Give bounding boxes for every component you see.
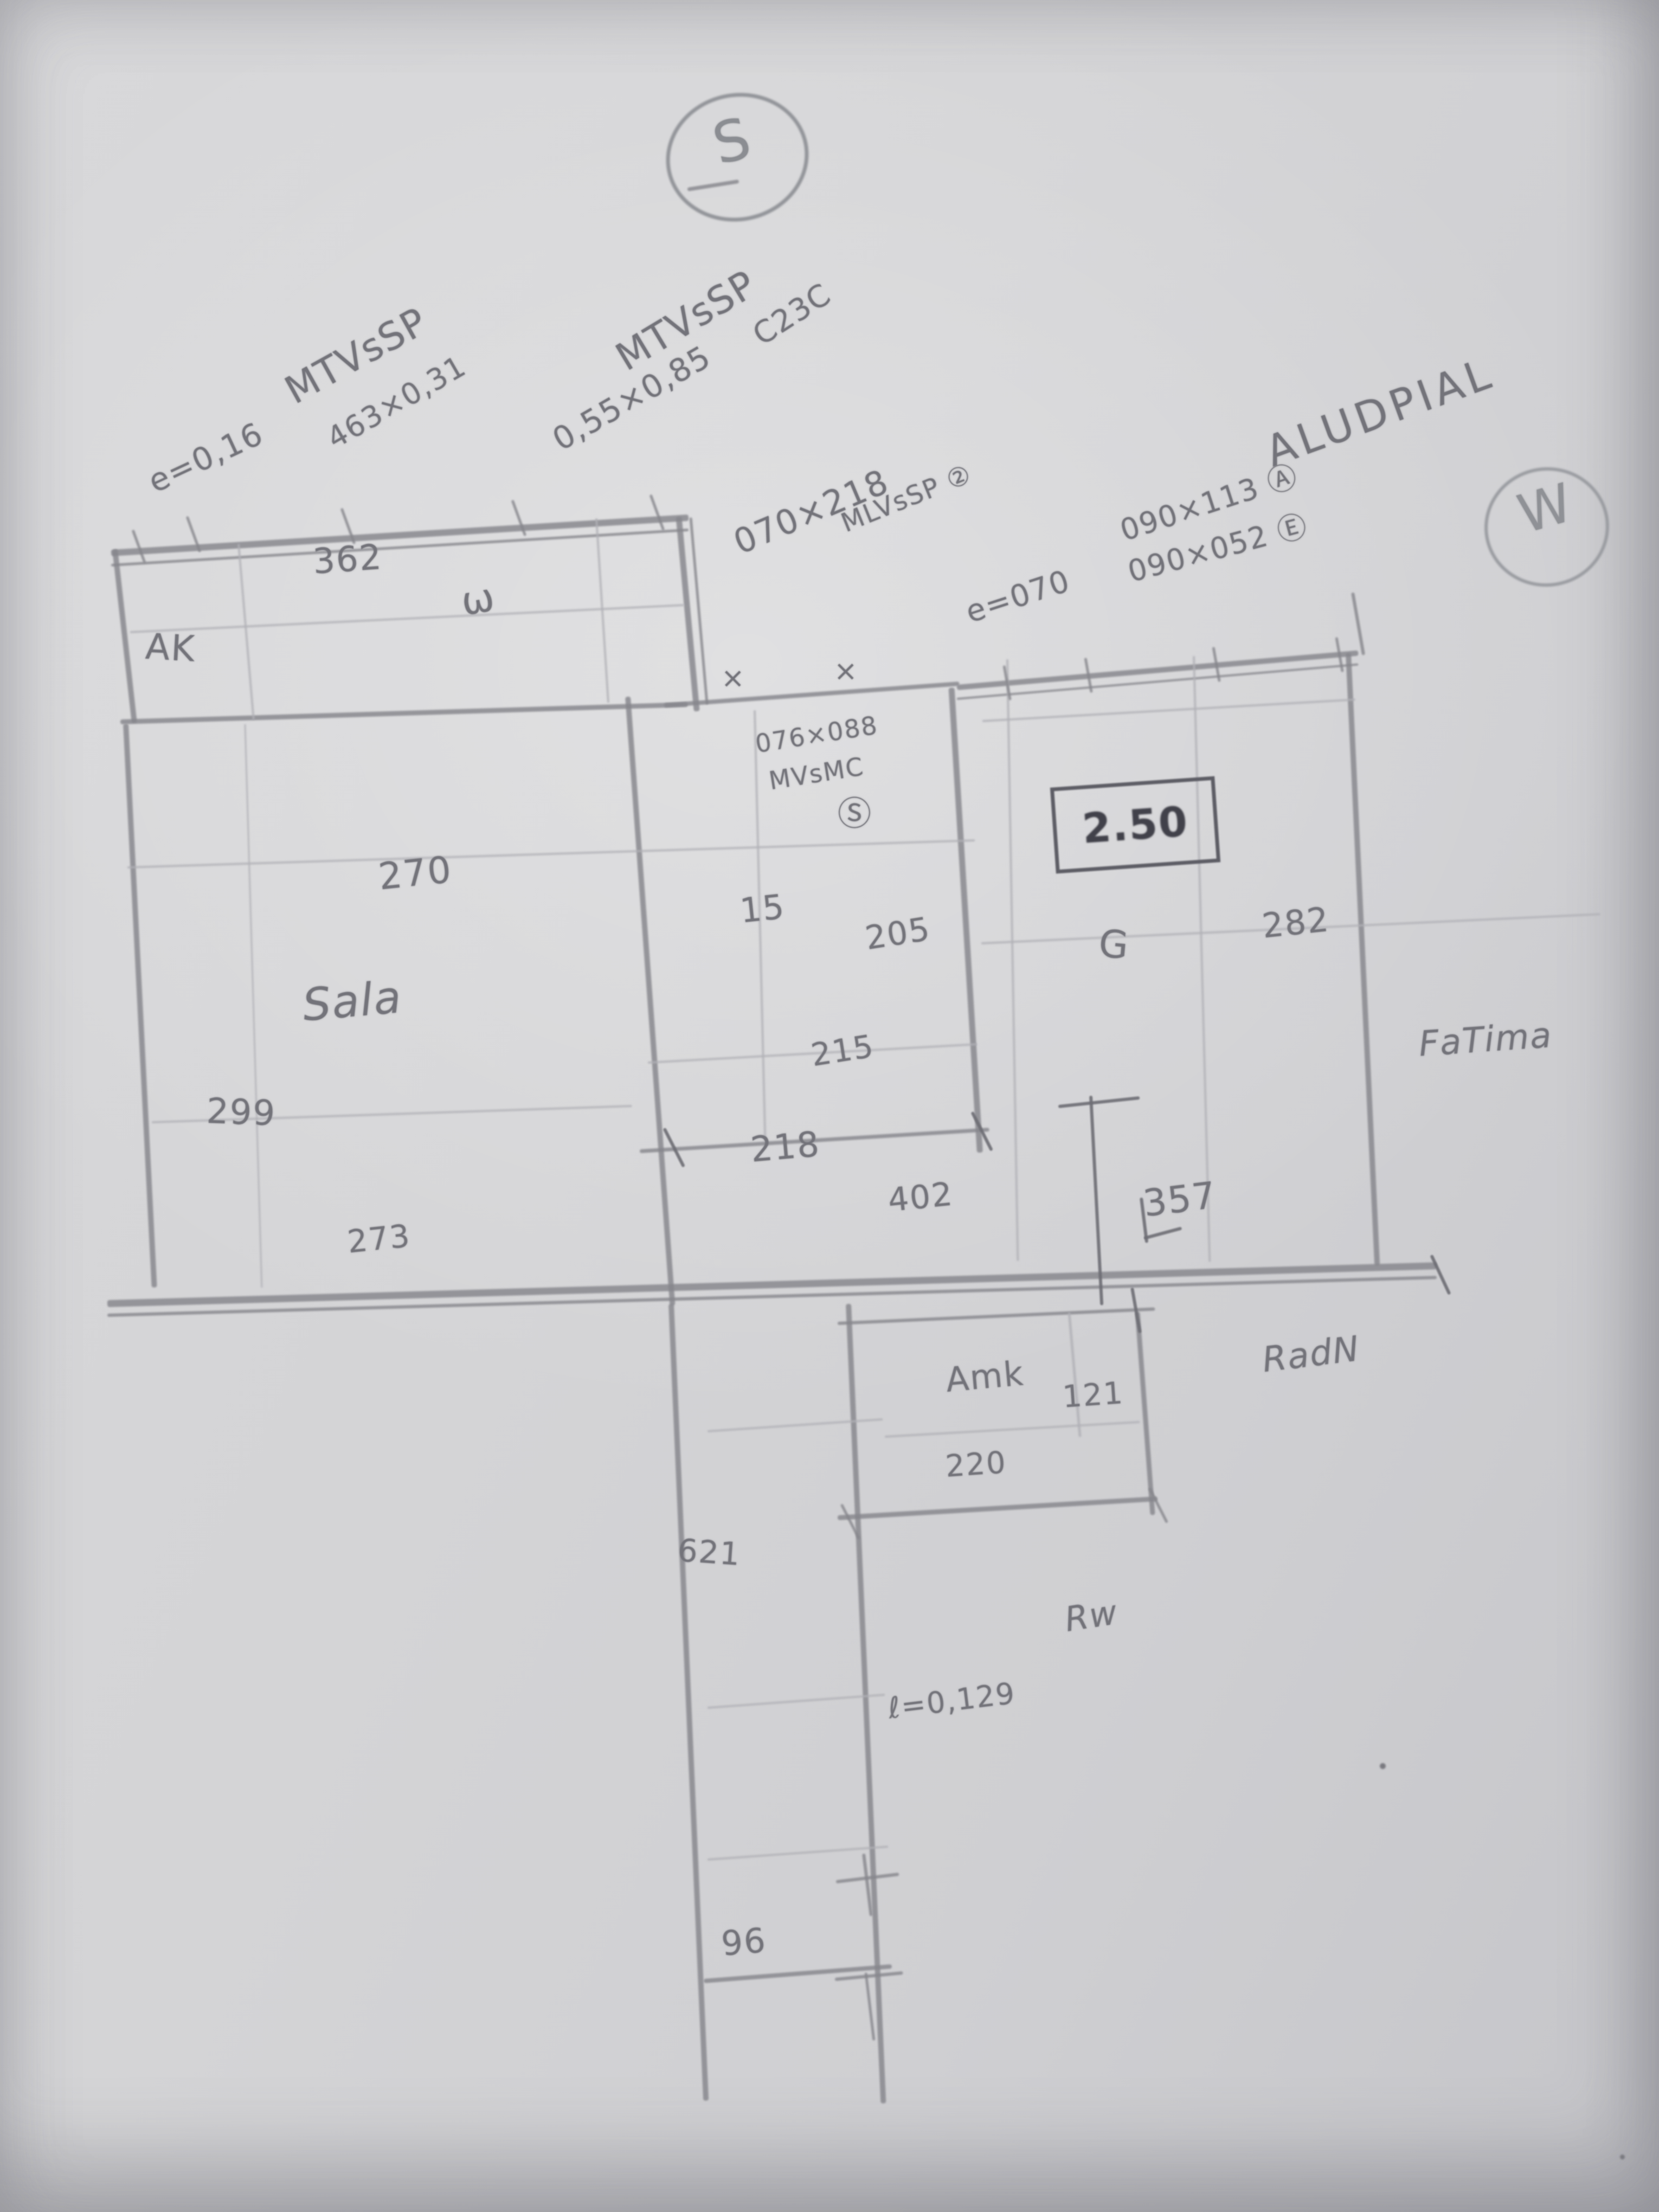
wall-line: [664, 681, 960, 708]
wall-line: [123, 724, 157, 1288]
construction-line: [595, 518, 609, 703]
wall-line: [704, 1964, 892, 1983]
dim-270: 270: [377, 852, 454, 896]
dim-15: 15: [738, 890, 787, 928]
construction-line: [708, 1694, 885, 1709]
mark-g: G: [1097, 924, 1131, 965]
wall-line: [1135, 1311, 1155, 1515]
value-box-250: 2.50: [1050, 776, 1220, 874]
tick-mark: [132, 530, 146, 564]
dim-e-016: e=0,16: [144, 417, 268, 498]
wall-line: [949, 687, 983, 1153]
wall-line: [120, 702, 688, 724]
label-aludpial: ALUDPIAL: [1261, 352, 1500, 473]
tick-mark: [650, 494, 665, 531]
dim-218: 218: [749, 1127, 821, 1168]
construction-line: [237, 544, 255, 720]
construction-line: [885, 1421, 1140, 1438]
dim-205: 205: [863, 912, 933, 955]
dim-220: 220: [944, 1448, 1008, 1482]
mark-x-2: ×: [834, 657, 859, 685]
wall-line: [676, 517, 700, 711]
wall-line: [1351, 592, 1365, 655]
tick-mark: [835, 1971, 903, 1981]
label-fatima: FaTima: [1418, 1018, 1553, 1062]
dim-l-0129: ℓ=0,129: [886, 1679, 1017, 1723]
dim-96: 96: [720, 1924, 768, 1961]
dim-299: 299: [206, 1094, 276, 1131]
wall-line: [1346, 653, 1380, 1266]
label-radn: RadN: [1261, 1332, 1362, 1378]
wall-line: [668, 1304, 709, 2101]
dim-e-070: e=070: [962, 566, 1074, 628]
wall-line: [112, 549, 137, 723]
construction-line: [1193, 656, 1211, 1262]
dim-402: 402: [886, 1178, 955, 1217]
mark-x-1: ×: [721, 664, 746, 692]
mark-circled-s: Ⓢ: [838, 797, 872, 831]
label-ak: AK: [145, 629, 197, 667]
construction-line: [245, 724, 263, 1288]
construction-line: [130, 604, 684, 633]
wall-line: [625, 697, 675, 1306]
dim-621: 621: [677, 1534, 742, 1570]
value-250: 2.50: [1081, 801, 1189, 849]
construction-line: [708, 1846, 888, 1861]
label-rw: Rw: [1063, 1596, 1120, 1637]
dim-282: 282: [1261, 903, 1331, 943]
paper-sheet: S W: [0, 0, 1659, 2212]
pencil-dot: [1620, 2155, 1625, 2159]
tick-mark: [1058, 1096, 1140, 1108]
room-label-amk: Amk: [944, 1356, 1026, 1397]
wall-line: [838, 1307, 1155, 1325]
construction-line: [1068, 1312, 1082, 1437]
dim-273: 273: [346, 1220, 412, 1258]
dim-357: 357: [1141, 1177, 1219, 1223]
construction-line: [127, 839, 975, 869]
label-mvsmc: MVsMC: [767, 754, 866, 793]
wall-line: [838, 1496, 1158, 1520]
dim-215: 215: [809, 1030, 876, 1071]
room-label-sala: Sala: [301, 975, 404, 1028]
construction-line: [1006, 659, 1019, 1261]
mark-omega: ω: [458, 577, 498, 621]
label-c23c: C23C: [748, 279, 837, 351]
tick-mark: [1143, 1226, 1182, 1239]
dim-362: 362: [312, 540, 383, 580]
construction-line: [982, 698, 1355, 722]
dim-076x088: 076×088: [754, 712, 880, 756]
tick-mark: [1430, 1255, 1451, 1295]
dim-121: 121: [1062, 1378, 1125, 1413]
pencil-dot: [1380, 1763, 1386, 1769]
tick-mark: [865, 1972, 876, 2041]
